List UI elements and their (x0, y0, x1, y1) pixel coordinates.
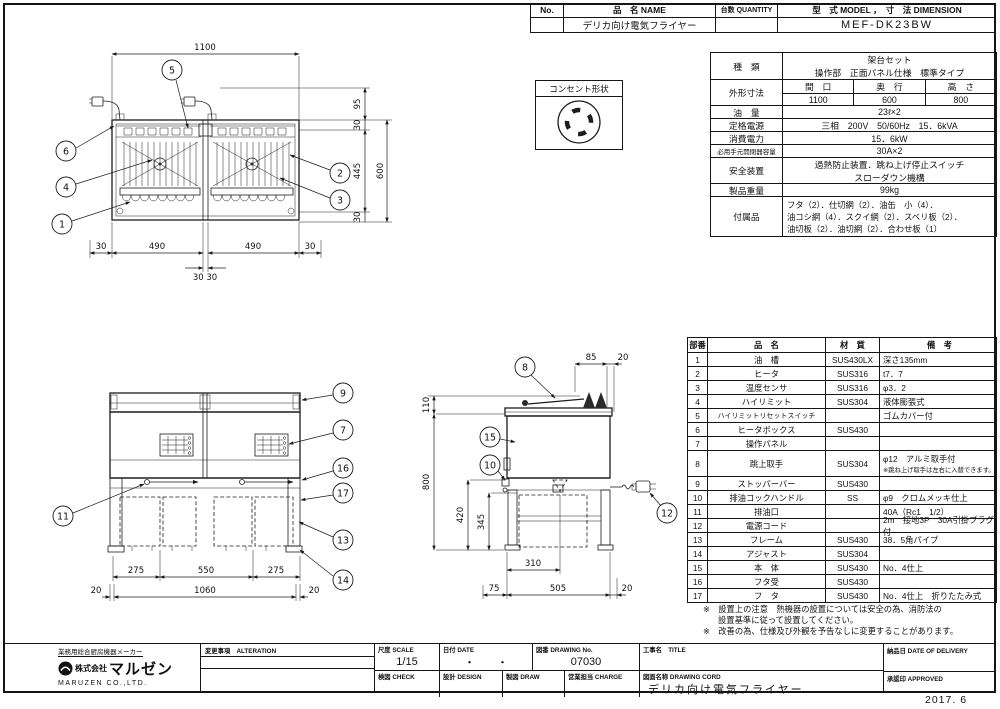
spec-row-weight: 製品重量 99kg (711, 183, 996, 196)
delivery-date-label: 納品日 DATE OF DELIVERY (884, 644, 996, 672)
check-cell: 検図 CHECK (375, 671, 440, 697)
scale-label: 尺度 SCALE (375, 644, 439, 654)
balloon-number: 3 (337, 196, 343, 207)
parts-row: 9ストッパーバーSUS430 (688, 476, 996, 490)
check-label: 検図 CHECK (375, 671, 439, 681)
product-name: デリカ向け電気フライヤー (564, 18, 716, 32)
header-table: No. 品 名 NAME 台数 QUANTITY 型 式 MODEL ， 寸 法… (530, 3, 996, 33)
spec-breaker-label: 必用手元開閉器容量 (711, 145, 783, 157)
dimension-label: 20 (618, 353, 629, 363)
parts-h-note: 備 考 (880, 338, 996, 352)
outlet-shape-label: コンセント形状 (536, 81, 622, 97)
spec-row-power: 定格電源 三相 200V 50/60Hz 15．6kVA (711, 118, 996, 131)
spec-depth-label: 奥 行 (853, 80, 924, 93)
parts-h-no: 部番 (688, 338, 708, 352)
balloon-number: 9 (340, 389, 346, 400)
alteration-cell: 変更事項 ALTERATION (200, 644, 375, 691)
dimension-label: 490 (245, 242, 261, 252)
company-prefix: 株式会社 (75, 663, 107, 674)
spec-safety-line2: スローダウン機構 (854, 171, 924, 184)
part-note: φ12 アルミ取手付※跳ね上げ取手は左右に入替できます。 (880, 451, 996, 476)
part-material: SUS430 (826, 561, 880, 574)
alteration-label: 変更事項 ALTERATION (201, 644, 374, 657)
balloon-number: 17 (337, 489, 349, 500)
spec-consumption-label: 消費電力 (711, 132, 783, 144)
side-body (504, 392, 612, 492)
issue-date: 2017. 6 (925, 694, 967, 706)
plan-view-drawing: 1100 95 30 445 30 600 (40, 40, 410, 295)
parts-row: 12電源コード2m 接地3P 30A引掛プラグ付 (688, 518, 996, 532)
project-title-cell: 工事名 TITLE (640, 644, 883, 670)
plan-heater-terminals (124, 128, 286, 135)
scale-value: 1/15 (375, 654, 439, 670)
part-no: 1 (688, 353, 708, 366)
part-name: 排油コックハンドル (708, 491, 826, 504)
drawing-no-value: 07030 (533, 654, 639, 670)
side-stand (502, 478, 613, 550)
spec-row-kind: 種 類 架台セット 操作部 正面パネル仕様 標準タイプ (711, 53, 996, 79)
part-material: SUS304 (826, 395, 880, 408)
part-no: 7 (688, 437, 708, 450)
part-name: 油 槽 (708, 353, 826, 366)
balloon-number: 13 (337, 536, 349, 547)
part-no: 10 (688, 491, 708, 504)
parts-row: 16フタ受SUS430 (688, 574, 996, 588)
company-name-en: MARUZEN CO.,LTD. (58, 680, 200, 687)
design-cell: 設計 DESIGN (440, 671, 503, 697)
balloon-number: 4 (63, 183, 69, 194)
dimension-label: 800 (422, 474, 432, 490)
parts-row: 13フレームSUS43038．5角パイプ (688, 532, 996, 546)
header-no-label: No. (531, 3, 564, 17)
dimension-label: 95 (353, 99, 363, 110)
part-no: 4 (688, 395, 708, 408)
parts-h-mat: 材 質 (826, 338, 880, 352)
draw-cell: 製図 DRAW (503, 671, 565, 697)
part-name: ハイリミット (708, 395, 826, 408)
part-note-line1: φ12 アルミ取手付 (883, 453, 996, 465)
spec-consumption-value: 15．6kW (783, 132, 996, 144)
spec-safety-label: 安全装置 (711, 158, 783, 183)
parts-row: 15本 体SUS430No．4仕上 (688, 560, 996, 574)
part-name: ヒータボックス (708, 423, 826, 436)
parts-row: 5ハイリミットリセットスイッチゴムカバー付 (688, 408, 996, 422)
date-cell: 日付 DATE ・ ・ (440, 644, 533, 670)
drawing-no-cell: 図番 DRAWING No. 07030 (533, 644, 640, 670)
spec-height-label: 高 さ (925, 80, 996, 93)
maruzen-logo-icon (58, 661, 73, 676)
dimension-label: 420 (456, 507, 466, 523)
part-note (880, 477, 996, 490)
scale-cell: 尺度 SCALE 1/15 (375, 644, 440, 670)
balloon-number: 10 (484, 461, 496, 472)
parts-row: 6ヒータボックスSUS430 (688, 422, 996, 436)
approved-label: 承認印 APPROVED (884, 672, 996, 691)
part-note: ゴムカバー付 (880, 409, 996, 422)
dimension-label: 490 (149, 242, 165, 252)
spec-width-value: 1100 (783, 94, 853, 105)
dimension-label: 30 (305, 242, 316, 252)
drawing-no-label: 図番 DRAWING No. (533, 644, 639, 654)
side-dimensions: 85 20 110 800 420 345 310 (422, 353, 632, 599)
title-block-grid: 尺度 SCALE 1/15 日付 DATE ・ ・ 図番 DRAWING No.… (375, 644, 883, 691)
part-no: 8 (688, 451, 708, 476)
spec-kind-label: 種 類 (711, 53, 783, 79)
part-note: No．4仕上 (880, 561, 996, 574)
part-material: SUS430 (826, 589, 880, 602)
drawing-name-cell: 図面名称 DRAWING CORD デリカ向け電気フライヤー (640, 671, 883, 697)
dimension-label: 20 (622, 584, 633, 594)
header-no-value (531, 18, 564, 32)
dimension-label: 30 (96, 242, 107, 252)
company-tagline: 業務用総合厨房機器メーカー (58, 646, 143, 657)
date-label: 日付 DATE (440, 644, 532, 654)
balloon-number: 16 (337, 464, 349, 475)
balloon-number: 14 (337, 576, 349, 587)
spec-accessories-line3: 油切板（2）．油切網（2）．合わせ板（1） (787, 223, 942, 235)
spec-depth-value: 600 (853, 94, 924, 105)
plan-power-cords (89, 97, 216, 120)
model-number: MEF-DK23BW (778, 18, 996, 32)
part-name: 排油口 (708, 505, 826, 518)
part-no: 17 (688, 589, 708, 602)
parts-row: 8跳上取手SUS304φ12 アルミ取手付※跳ね上げ取手は左右に入替できます。 (688, 450, 996, 476)
parts-row: 1油 槽SUS430LX深さ135mm (688, 352, 996, 366)
balloon-number: 8 (522, 363, 528, 374)
spec-accessories-line2: 油コシ網（4）．スクイ網（2）．スベリ板（2）． (787, 211, 962, 223)
dimension-label: 550 (198, 566, 214, 576)
spec-row-oil: 油 量 23ℓ×2 (711, 105, 996, 118)
balloon-number: 15 (484, 433, 496, 444)
spec-power-label: 定格電源 (711, 119, 783, 131)
dimension-label: 505 (550, 584, 566, 594)
balloon-number: 1 (59, 220, 65, 231)
header-qty-value (716, 18, 778, 32)
draw-label: 製図 DRAW (503, 671, 564, 681)
spec-oil-label: 油 量 (711, 106, 783, 118)
parts-h-name: 品 名 (708, 338, 826, 352)
dimension-label: 30 (353, 212, 363, 223)
part-no: 14 (688, 547, 708, 560)
spec-row-dimensions: 外形寸法 間 口 奥 行 高 さ 1100 600 800 (711, 79, 996, 105)
part-material: SUS304 (826, 547, 880, 560)
spec-table: 種 類 架台セット 操作部 正面パネル仕様 標準タイプ 外形寸法 間 口 奥 行… (710, 52, 997, 237)
outlet-shape-box: コンセント形状 (535, 80, 623, 150)
part-no: 13 (688, 533, 708, 546)
note-line3: ※ 改善の為、仕様及び外観を予告なしに変更することがあります。 (703, 626, 995, 637)
part-no: 2 (688, 367, 708, 380)
header-qty-label: 台数 QUANTITY (716, 3, 778, 17)
part-name: 操作パネル (708, 437, 826, 450)
dimension-label: 75 (489, 584, 500, 594)
dimension-label: 110 (422, 397, 432, 413)
part-material: SUS430 (826, 575, 880, 588)
part-material (826, 409, 880, 422)
part-note: 2m 接地3P 30A引掛プラグ付 (880, 519, 996, 532)
dimension-label: 275 (268, 566, 284, 576)
balloon-number: 7 (340, 426, 346, 437)
front-control-panels (160, 434, 288, 456)
part-material: SUS430LX (826, 353, 880, 366)
part-material: SUS316 (826, 367, 880, 380)
part-name: ハイリミットリセットスイッチ (708, 409, 826, 422)
dimension-label: 20 (91, 586, 102, 596)
plan-right-vat-heaters (211, 142, 293, 201)
parts-row: 3温度センサSUS316φ3．2 (688, 380, 996, 394)
charge-cell: 営業担当 CHARGE (565, 671, 640, 697)
part-name: 本 体 (708, 561, 826, 574)
part-name: フ タ (708, 589, 826, 602)
parts-row: 2ヒータSUS316t7．7 (688, 366, 996, 380)
part-note: t7．7 (880, 367, 996, 380)
balloon-number: 12 (661, 509, 673, 520)
alteration-empty-row (201, 669, 374, 691)
spec-row-breaker: 必用手元開閉器容量 30A×2 (711, 144, 996, 157)
part-note: 液体膨張式 (880, 395, 996, 408)
parts-header-row: 部番 品 名 材 質 備 考 (688, 338, 996, 352)
spec-width-label: 間 口 (783, 80, 853, 93)
part-no: 9 (688, 477, 708, 490)
dimension-label: 600 (376, 163, 386, 179)
drawing-name-value: デリカ向け電気フライヤー (640, 681, 883, 697)
spec-height-value: 800 (925, 94, 996, 105)
installation-notes: ※ 設置上の注意 熱機器の設置については安全の為、消防法の 設置基準に従って設置… (703, 604, 995, 637)
header-table-head-row: No. 品 名 NAME 台数 QUANTITY 型 式 MODEL ， 寸 法… (531, 3, 996, 18)
part-material (826, 519, 880, 532)
part-name: アジャスト (708, 547, 826, 560)
dimension-label: 1100 (194, 43, 216, 53)
part-note (880, 575, 996, 588)
part-material: SS (826, 491, 880, 504)
front-stand (108, 478, 302, 552)
dimension-label: 20 (309, 586, 320, 596)
spec-row-safety: 安全装置 過熱防止装置．跳ね上げ停止スイッチ スローダウン機構 (711, 157, 996, 183)
spec-row-consumption: 消費電力 15．6kW (711, 131, 996, 144)
part-note: φ9 クロムメッキ仕上 (880, 491, 996, 504)
part-name: フレーム (708, 533, 826, 546)
plan-balloons: 5 6 4 1 2 3 (52, 60, 350, 234)
dimension-label: 30 (353, 120, 363, 131)
locking-receptacle-icon (536, 97, 622, 148)
part-material: SUS430 (826, 477, 880, 490)
title-block: 業務用総合厨房機器メーカー 株式会社 マルゼン MARUZEN CO.,LTD.… (3, 643, 996, 691)
part-note: φ3．2 (880, 381, 996, 394)
plan-left-vat-heaters (120, 142, 200, 201)
date-value: ・ ・ (440, 654, 532, 670)
spec-weight-value: 99kg (783, 184, 996, 196)
dimension-label: 275 (128, 566, 144, 576)
parts-row: 17フ タSUS430No．4仕上 折りたたみ式 (688, 588, 996, 602)
company-logo-text: マルゼン (109, 658, 173, 679)
part-no: 12 (688, 519, 708, 532)
note-line2: 設置基準に従って設置してください。 (703, 615, 995, 626)
part-material: SUS304 (826, 451, 880, 476)
dimension-label: 30 30 (193, 273, 217, 283)
side-balloons: 8 15 10 12 (480, 357, 677, 523)
header-model-label: 型 式 MODEL ， 寸 法 DIMENSION (778, 3, 996, 17)
part-no: 16 (688, 575, 708, 588)
part-name: 温度センサ (708, 381, 826, 394)
spec-dims-label: 外形寸法 (711, 80, 783, 105)
front-view-drawing: 275 550 275 20 1060 20 9 7 (40, 370, 385, 615)
approval-column: 納品日 DATE OF DELIVERY 承認印 APPROVED (883, 644, 996, 691)
project-title-label: 工事名 TITLE (640, 644, 883, 654)
drawing-sheet: No. 品 名 NAME 台数 QUANTITY 型 式 MODEL ， 寸 法… (0, 0, 1000, 709)
parts-row: 14アジャストSUS304 (688, 546, 996, 560)
spec-accessories-label: 付属品 (711, 197, 783, 236)
spec-safety-line1: 過熱防止装置．跳ね上げ停止スイッチ (815, 158, 965, 171)
balloon-number: 5 (169, 66, 175, 77)
side-power-cord (610, 481, 656, 492)
part-material (826, 505, 880, 518)
part-material: SUS430 (826, 533, 880, 546)
balloon-number: 11 (57, 512, 69, 523)
part-name: 跳上取手 (708, 451, 826, 476)
part-name: ストッパーバー (708, 477, 826, 490)
part-no: 11 (688, 505, 708, 518)
part-name: 電源コード (708, 519, 826, 532)
spec-oil-value: 23ℓ×2 (783, 106, 996, 118)
dimension-label: 310 (525, 559, 541, 569)
part-note: 深さ135mm (880, 353, 996, 366)
part-note: No．4仕上 折りたたみ式 (880, 589, 996, 602)
header-table-value-row: デリカ向け電気フライヤー MEF-DK23BW (531, 18, 996, 33)
alteration-empty-row (201, 657, 374, 669)
drawing-name-label: 図面名称 DRAWING CORD (640, 671, 883, 681)
front-body (110, 393, 300, 478)
part-material (826, 437, 880, 450)
part-no: 15 (688, 561, 708, 574)
part-material: SUS430 (826, 423, 880, 436)
dimension-label: 1060 (194, 586, 216, 596)
part-no: 3 (688, 381, 708, 394)
side-view-drawing: 85 20 110 800 420 345 310 (420, 350, 690, 640)
note-line1: ※ 設置上の注意 熱機器の設置については安全の為、消防法の (703, 604, 995, 615)
spec-power-value: 三相 200V 50/60Hz 15．6kVA (783, 119, 996, 131)
part-name: ヒータ (708, 367, 826, 380)
balloon-number: 6 (63, 147, 69, 158)
dimension-label: 85 (586, 353, 597, 363)
dimension-label: 445 (353, 163, 363, 179)
spec-accessories-line1: フタ（2）．仕切網（2）．油缶 小（4）． (787, 199, 938, 211)
spec-weight-label: 製品重量 (711, 184, 783, 196)
spec-row-accessories: 付属品 フタ（2）．仕切網（2）．油缶 小（4）． 油コシ網（4）．スクイ網（2… (711, 196, 996, 236)
charge-label: 営業担当 CHARGE (565, 671, 639, 681)
balloon-number: 2 (337, 169, 343, 180)
parts-row: 4ハイリミットSUS304液体膨張式 (688, 394, 996, 408)
parts-row: 7操作パネル (688, 436, 996, 450)
spec-kind-line1: 架台セット (868, 53, 912, 66)
parts-row: 10排油コックハンドルSSφ9 クロムメッキ仕上 (688, 490, 996, 504)
spec-kind-line2: 操作部 正面パネル仕様 標準タイプ (815, 66, 965, 79)
part-material: SUS316 (826, 381, 880, 394)
header-name-label: 品 名 NAME (564, 3, 716, 17)
part-note (880, 547, 996, 560)
parts-table: 部番 品 名 材 質 備 考 1油 槽SUS430LX深さ135mm 2ヒータS… (687, 337, 997, 603)
part-note (880, 437, 996, 450)
spec-breaker-value: 30A×2 (783, 145, 996, 157)
front-dimensions: 275 550 275 20 1060 20 (91, 550, 320, 601)
front-drain-cocks (145, 480, 294, 485)
part-note-line2: ※跳ね上げ取手は左右に入替できます。 (883, 465, 996, 474)
part-no: 5 (688, 409, 708, 422)
company-block: 業務用総合厨房機器メーカー 株式会社 マルゼン MARUZEN CO.,LTD. (3, 644, 200, 691)
part-no: 6 (688, 423, 708, 436)
part-note (880, 423, 996, 436)
design-label: 設計 DESIGN (440, 671, 502, 681)
part-note: 38．5角パイプ (880, 533, 996, 546)
dimension-label: 345 (477, 514, 487, 530)
part-name: フタ受 (708, 575, 826, 588)
